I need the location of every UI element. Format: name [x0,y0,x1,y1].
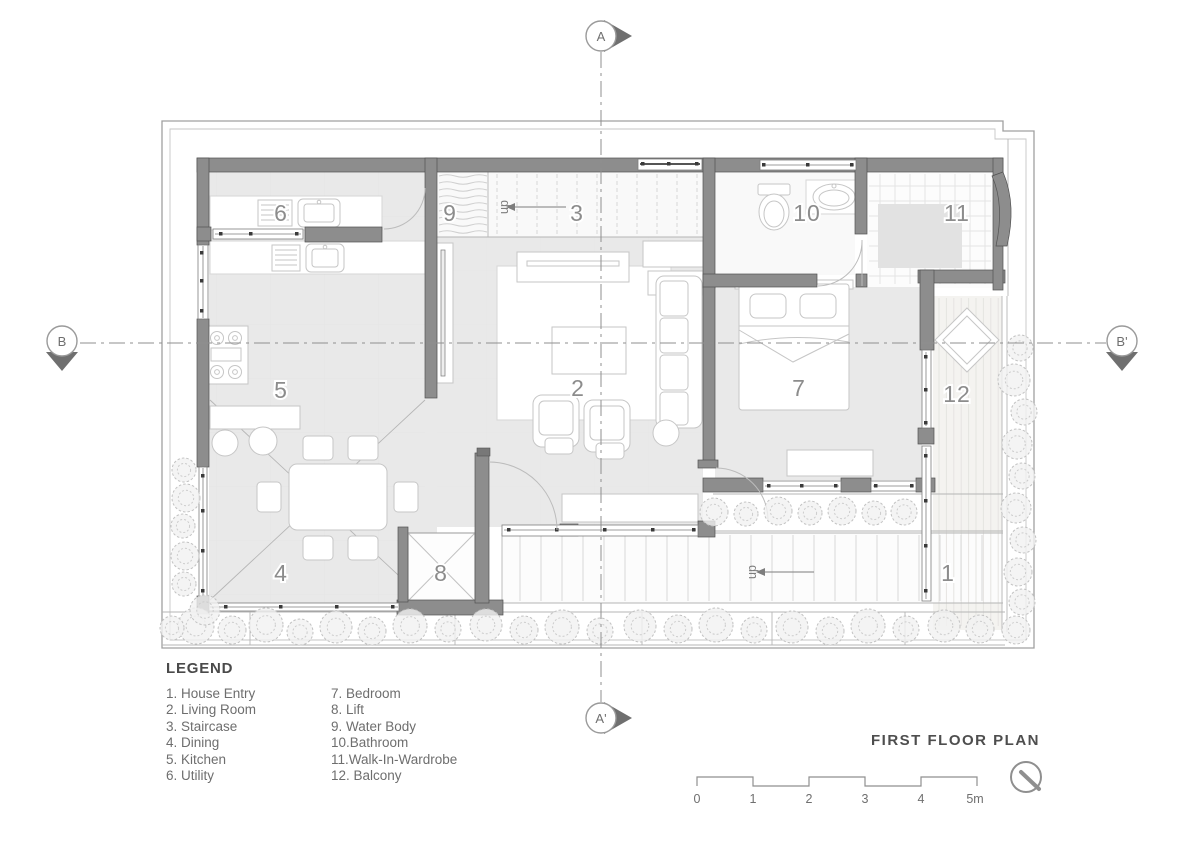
room-label-balcony: 12 [943,381,971,407]
scale-tick-3: 3 [862,792,869,806]
legend-item-kitchen: 5. Kitchen [166,752,331,768]
legend-item-water-body: 9. Water Body [331,719,457,735]
legend-item-utility: 6. Utility [166,768,331,784]
north-indicator-icon [1011,762,1041,792]
plan-title: FIRST FLOOR PLAN [871,732,1040,749]
legend-column-1: 1. House Entry 2. Living Room 3. Stairca… [166,686,331,784]
room-label-wardrobe: 11 [944,200,970,226]
section-marker-a-label: A [597,29,606,44]
scale-tick-0: 0 [694,792,701,806]
section-marker-b: B [46,326,78,371]
scale-tick-5m: 5m [966,792,983,806]
section-marker-b-prime-label: B' [1116,334,1127,349]
legend-item-lift: 8. Lift [331,702,457,718]
legend-heading: LEGEND [166,660,457,677]
room-label-house-entry: 1 [941,560,955,586]
room-label-bathroom: 10 [793,200,821,226]
utility-counter [210,196,382,230]
scale-tick-1: 1 [750,792,757,806]
room-label-bedroom: 7 [792,375,806,401]
legend: LEGEND 1. House Entry 2. Living Room 3. … [166,660,457,784]
floor-plan-sheet: A A' B B' up up 1 2 3 4 5 6 7 8 9 10 11 [0,0,1200,848]
stove [206,326,248,384]
section-marker-b-label: B [58,334,67,349]
section-marker-a-prime-label: A' [595,711,606,726]
room-label-utility: 6 [274,200,288,226]
scale-bar: 0 1 2 3 4 5m [694,777,984,806]
kitchen-counter [210,241,425,274]
legend-item-living-room: 2. Living Room [166,702,331,718]
legend-item-wardrobe: 11.Walk-In-Wardrobe [331,752,457,768]
legend-item-dining: 4. Dining [166,735,331,751]
legend-item-bathroom: 10.Bathroom [331,735,457,751]
water-body-shelf [437,243,453,383]
room-label-living-room: 2 [571,375,585,401]
room-label-kitchen: 5 [274,377,288,403]
legend-item-bedroom: 7. Bedroom [331,686,457,702]
scale-tick-4: 4 [918,792,925,806]
legend-item-staircase: 3. Staircase [166,719,331,735]
room-label-lift: 8 [434,560,448,586]
room-label-staircase: 3 [570,200,584,226]
room-label-water-body: 9 [443,200,457,226]
section-marker-a-prime: A' [586,702,632,734]
legend-item-balcony: 12. Balcony [331,768,457,784]
section-marker-b-prime: B' [1106,326,1138,371]
legend-item-house-entry: 1. House Entry [166,686,331,702]
section-marker-a: A [586,20,632,52]
legend-column-2: 7. Bedroom 8. Lift 9. Water Body 10.Bath… [331,686,457,784]
scale-tick-2: 2 [806,792,813,806]
room-label-dining: 4 [274,560,288,586]
